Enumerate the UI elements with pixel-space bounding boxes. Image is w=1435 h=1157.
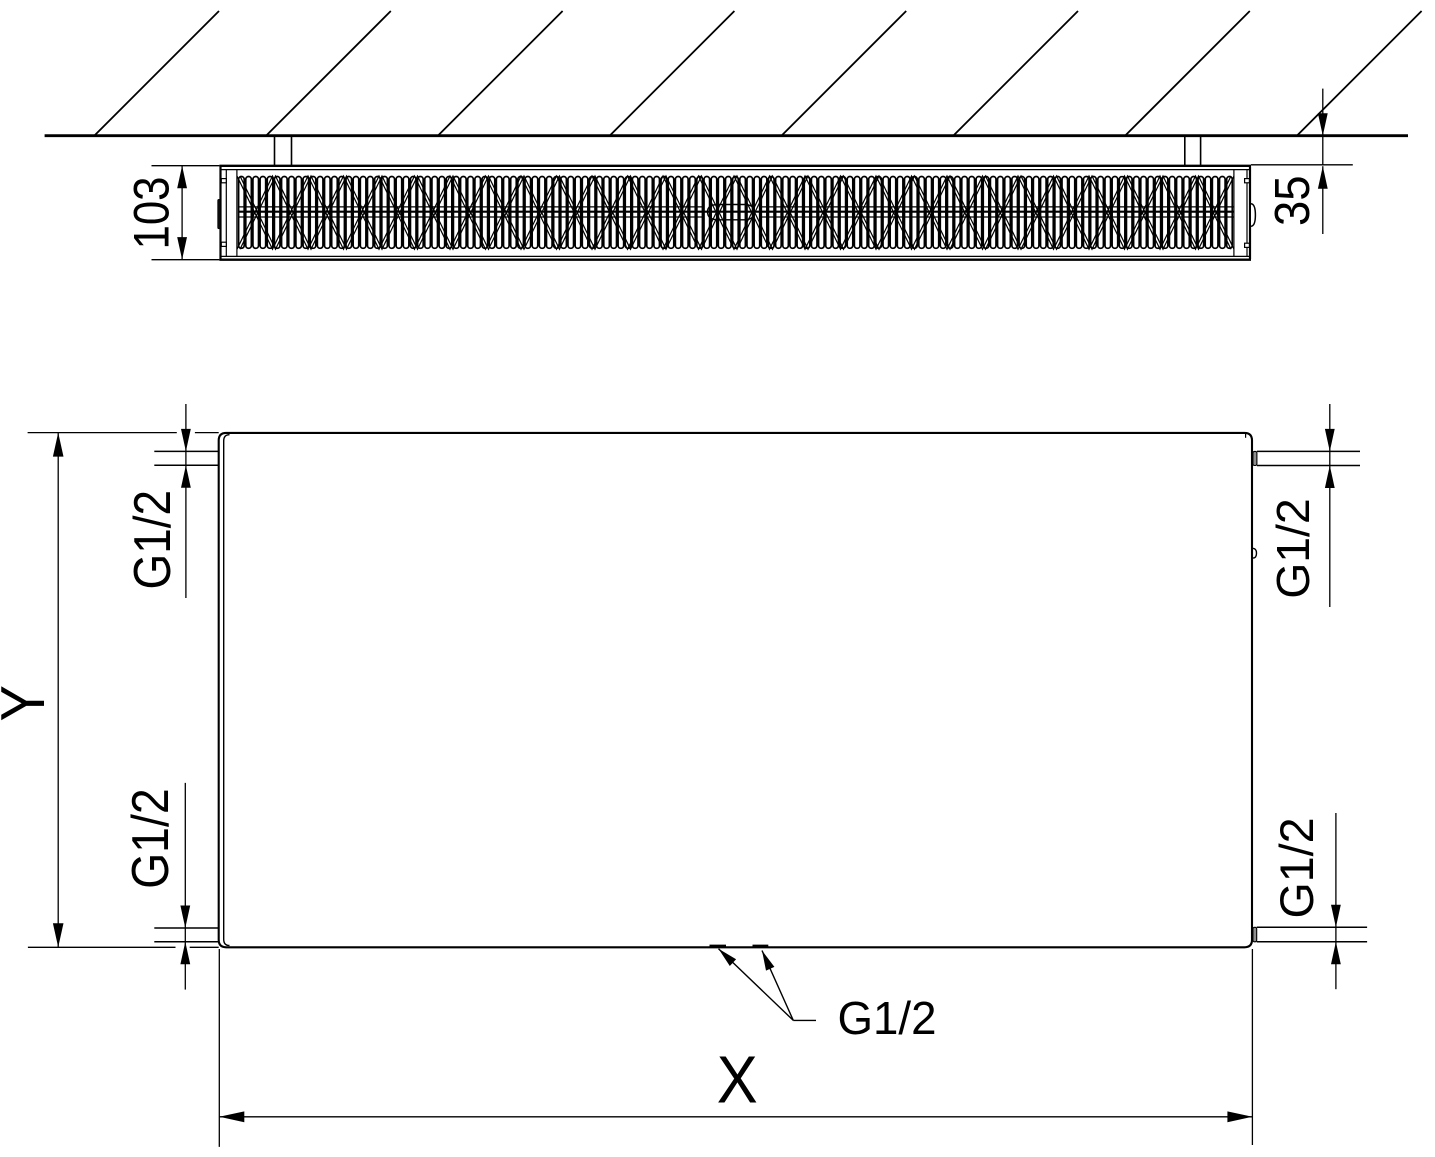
svg-text:X: X (717, 1043, 758, 1118)
svg-text:G1/2: G1/2 (122, 788, 180, 889)
svg-text:Y: Y (0, 685, 58, 722)
svg-text:103: 103 (123, 177, 179, 250)
svg-text:G1/2: G1/2 (1267, 498, 1319, 599)
svg-text:G1/2: G1/2 (124, 490, 182, 590)
svg-text:35: 35 (1266, 176, 1320, 227)
svg-text:G1/2: G1/2 (838, 992, 937, 1044)
svg-text:G1/2: G1/2 (1270, 818, 1323, 919)
